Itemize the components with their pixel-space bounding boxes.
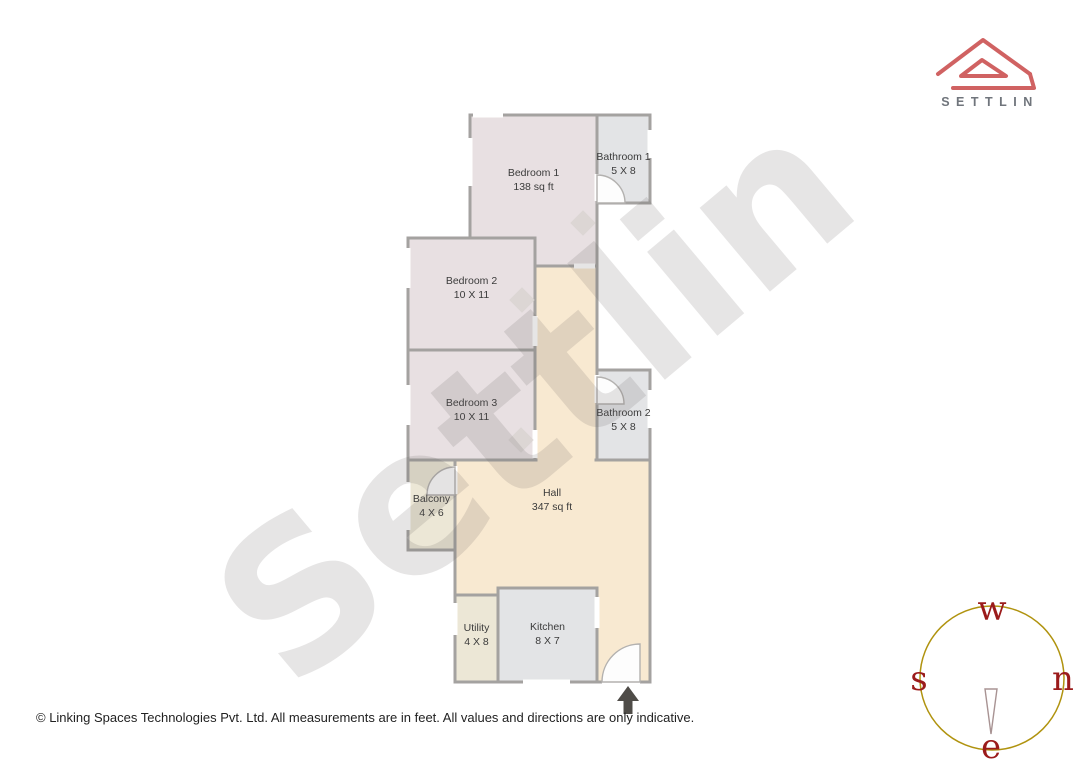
settlin-logo: SETTLIN (938, 40, 1039, 109)
compass-west: w (977, 589, 1006, 629)
bedroom2-size: 10 X 11 (454, 289, 490, 301)
floorplan-page: Bedroom 1 138 sq ft Bathroom 1 5 X 8 Bed… (0, 0, 1080, 764)
window-gap (406, 482, 411, 530)
balcony-size: 4 X 6 (419, 507, 444, 519)
utility-label: Utility (464, 622, 490, 634)
window-gap (406, 385, 411, 425)
utility-size: 4 X 8 (464, 636, 489, 648)
north-arrow-head (617, 686, 639, 701)
floorplan: Bedroom 1 138 sq ft Bathroom 1 5 X 8 Bed… (406, 113, 653, 715)
house-logo-icon (938, 40, 1034, 88)
kitchen-label: Kitchen (530, 621, 565, 633)
hall-corridor-area (535, 266, 597, 460)
hall-opening-patch (538, 457, 595, 464)
bathroom2-size: 5 X 8 (611, 421, 636, 433)
window-gap (453, 603, 458, 635)
balcony-label: Balcony (413, 493, 451, 505)
window-gap (406, 248, 411, 288)
hall-label: Hall (543, 487, 561, 499)
bedroom1-size: 138 sq ft (513, 181, 553, 193)
bedroom2-label: Bedroom 2 (446, 275, 498, 287)
disclaimer-text: © Linking Spaces Technologies Pvt. Ltd. … (36, 710, 694, 725)
door-gap-bedroom3 (533, 430, 538, 458)
logo-inner-roof (961, 60, 1006, 76)
door-gap-kitchen (595, 597, 600, 628)
bedroom3-label: Bedroom 3 (446, 397, 498, 409)
compass-south: s (910, 659, 927, 699)
bathroom1-size: 5 X 8 (611, 165, 636, 177)
bedroom1-label: Bedroom 1 (508, 167, 560, 179)
door-gap-bedroom1 (574, 264, 595, 269)
bathroom2-label: Bathroom 2 (596, 407, 650, 419)
logo-outer-roof (938, 40, 1030, 74)
window-gap (473, 113, 503, 118)
compass-north: n (1052, 659, 1074, 699)
kitchen-size: 8 X 7 (535, 635, 560, 647)
hall-size: 347 sq ft (532, 501, 572, 513)
door-gap-bedroom2 (533, 316, 538, 346)
compass: w n s e (910, 589, 1074, 764)
window-gap (523, 680, 570, 685)
window-gap (468, 138, 473, 186)
bedroom3-size: 10 X 11 (454, 411, 490, 423)
logo-wordmark: SETTLIN (941, 95, 1039, 109)
bathroom1-label: Bathroom 1 (596, 151, 650, 163)
floorplan-svg: Bedroom 1 138 sq ft Bathroom 1 5 X 8 Bed… (0, 0, 1080, 764)
